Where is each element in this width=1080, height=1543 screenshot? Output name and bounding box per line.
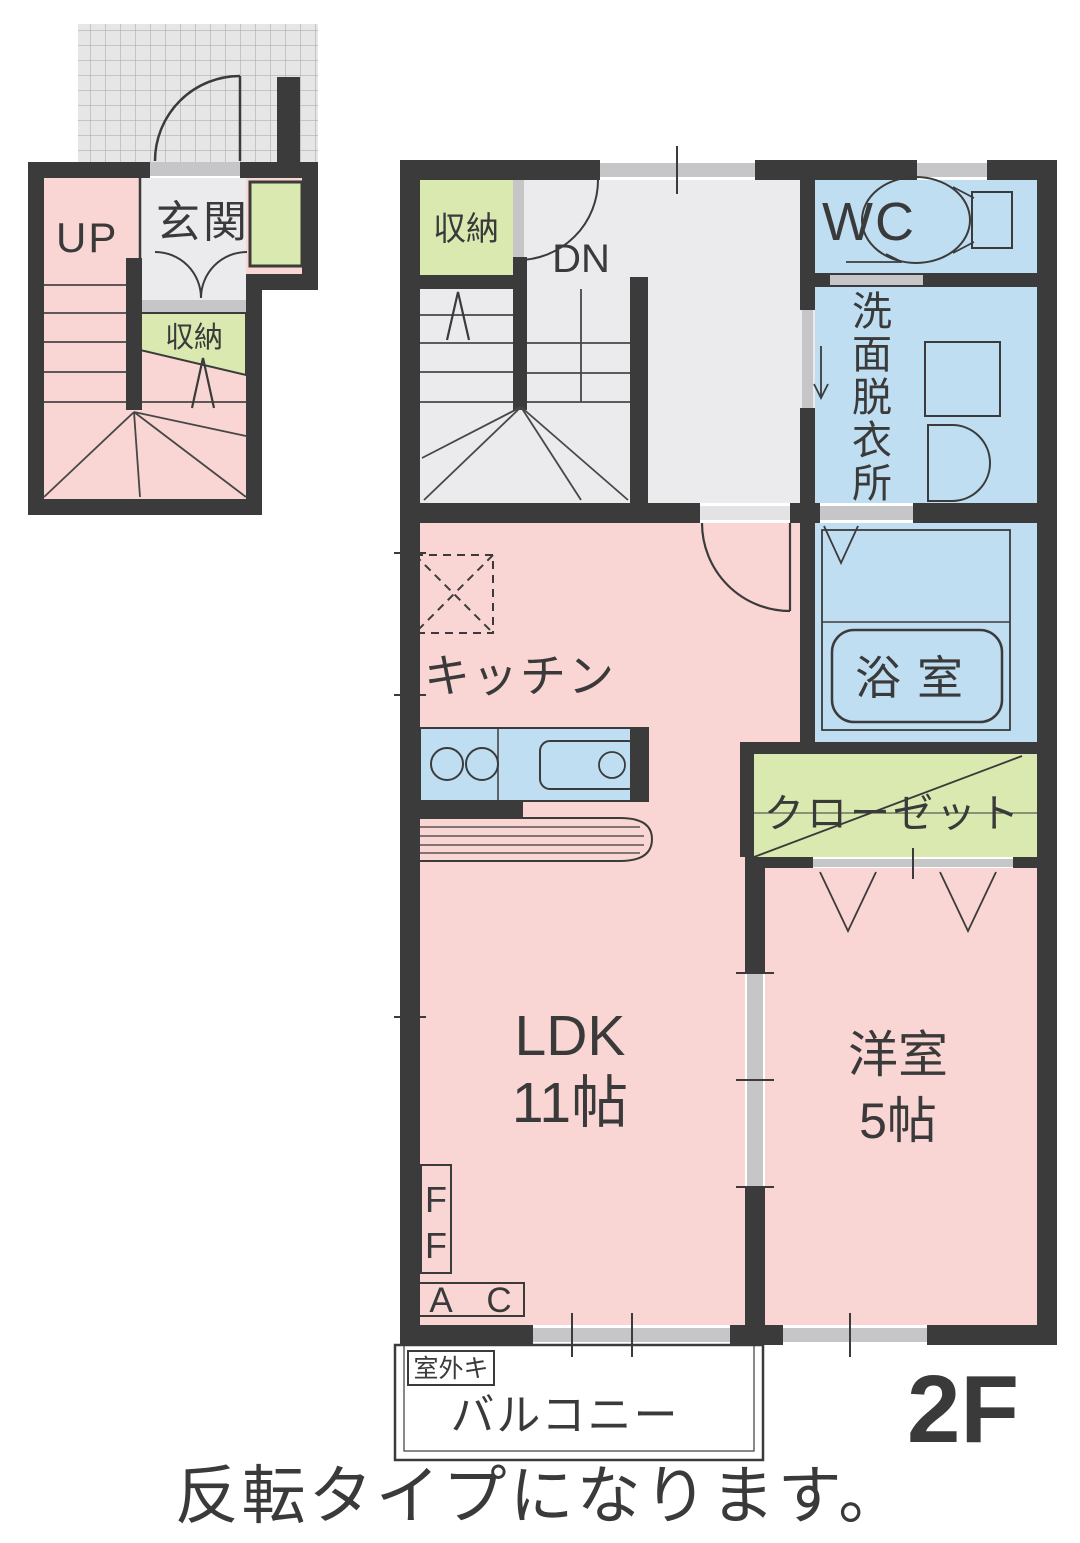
porch-pillar (277, 77, 300, 165)
svg-text:面: 面 (852, 333, 892, 377)
kitchen-counter (420, 728, 648, 801)
floor-label: 2F (907, 1356, 1019, 1463)
entry-opening (150, 162, 240, 176)
label-outdoor-unit: 室外キ (413, 1355, 488, 1383)
label-dn: DN (552, 237, 610, 281)
svg-text:所: 所 (852, 462, 892, 506)
label-genkan: 玄関 (156, 198, 250, 247)
label-storage-2f: 収納 (433, 210, 499, 247)
room-ldk (420, 523, 745, 1325)
label-ldk: LDK (515, 1004, 626, 1068)
label-ldk-size: 11帖 (512, 1071, 628, 1135)
window-wc (917, 163, 987, 177)
floorplan-page: UP 玄関 収納 (0, 0, 1080, 1543)
label-wc: WC (822, 192, 916, 252)
svg-text:F: F (425, 1225, 447, 1266)
svg-text:A: A (429, 1281, 453, 1320)
svg-text:C: C (486, 1281, 511, 1320)
svg-text:衣: 衣 (852, 419, 892, 463)
label-storage-1f: 収納 (165, 321, 223, 354)
caption-text: 反転タイプになります。 (175, 1460, 906, 1532)
label-bathroom: 浴室 (855, 652, 979, 704)
shoe-storage (250, 182, 302, 266)
partition-panel-1 (747, 973, 763, 1080)
genkan-threshold (140, 300, 246, 313)
washroom-sliding-door (802, 310, 813, 408)
room-ldk-east (745, 523, 800, 742)
wc-door-opening (830, 275, 923, 285)
second-floor-plan: 収納 DN WC 洗 面 脱 衣 所 浴室 キッチン クローゼット LDK 11… (394, 146, 1057, 1463)
label-kitchen: キッチン (424, 650, 616, 702)
label-closet: クローゼット (764, 792, 1022, 836)
bath-door-opening (820, 506, 913, 520)
label-up: UP (56, 214, 118, 261)
partition-panel-2 (747, 1080, 763, 1187)
svg-text:洗: 洗 (852, 290, 892, 334)
label-balcony: バルコニー (450, 1391, 679, 1440)
svg-text:F: F (425, 1179, 447, 1220)
window-western (783, 1328, 927, 1342)
room-bathroom (815, 523, 1037, 742)
label-western-room: 洋室 (848, 1027, 948, 1083)
svg-text:脱: 脱 (852, 376, 892, 420)
label-washroom: 洗 面 脱 衣 所 (852, 290, 892, 506)
label-western-room-size: 5帖 (859, 1093, 937, 1149)
first-floor-plan: UP 玄関 収納 (28, 24, 318, 515)
floor-plan: UP 玄関 収納 (0, 0, 1080, 1543)
